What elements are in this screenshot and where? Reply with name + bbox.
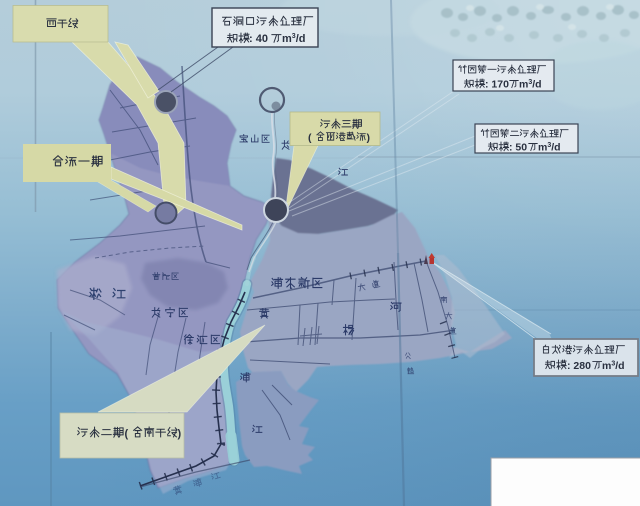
- svg-text:: 40: : 40: [249, 33, 268, 45]
- svg-text:: 170: : 170: [485, 79, 509, 91]
- svg-text:: 280: : 280: [567, 360, 591, 372]
- svg-text:): ): [367, 132, 371, 144]
- svg-text:): ): [178, 428, 182, 440]
- svg-text:(: (: [125, 428, 129, 440]
- svg-text:: 50: : 50: [509, 142, 527, 154]
- svg-text:(: (: [308, 132, 312, 144]
